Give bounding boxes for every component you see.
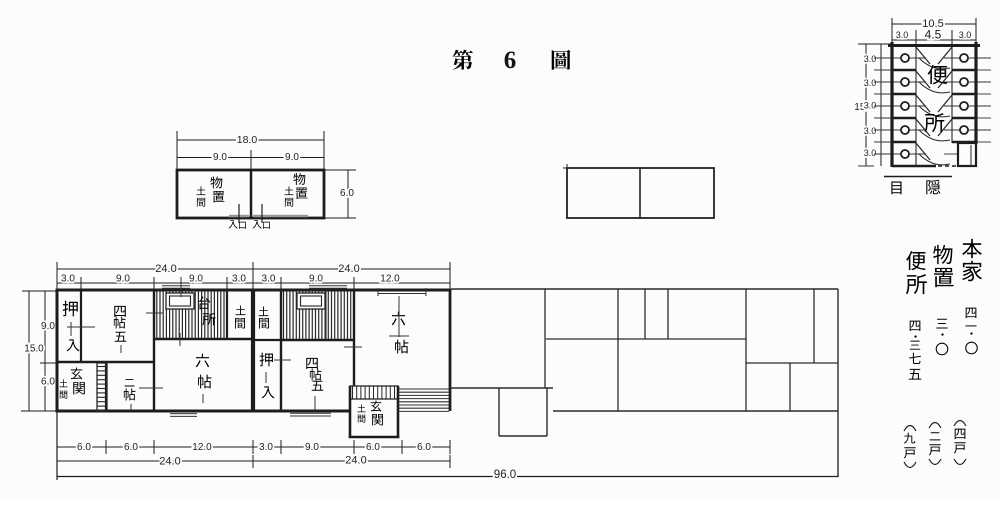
- svg-text:9.0: 9.0: [305, 442, 319, 453]
- svg-text:3.0: 3.0: [61, 274, 75, 285]
- svg-text:15.0: 15.0: [24, 344, 44, 355]
- svg-text:6.0: 6.0: [77, 442, 91, 453]
- svg-text:18.0: 18.0: [237, 134, 258, 146]
- svg-text:3.0: 3.0: [959, 30, 972, 40]
- svg-text:3.0: 3.0: [259, 442, 273, 453]
- svg-text:24.0: 24.0: [345, 455, 366, 467]
- svg-text:9.0: 9.0: [116, 274, 130, 285]
- svg-text:6.0: 6.0: [124, 442, 138, 453]
- svg-text:6.0: 6.0: [417, 442, 431, 453]
- svg-text:9.0: 9.0: [309, 274, 323, 285]
- svg-text:3.0: 3.0: [864, 101, 877, 111]
- svg-text:9.0: 9.0: [189, 274, 203, 285]
- svg-text:12.0: 12.0: [380, 274, 400, 285]
- svg-text:9.0: 9.0: [285, 152, 299, 163]
- svg-text:6.0: 6.0: [41, 377, 55, 388]
- svg-text:96.0: 96.0: [494, 469, 516, 481]
- svg-text:4.5: 4.5: [925, 28, 942, 42]
- svg-text:12.0: 12.0: [192, 442, 212, 453]
- svg-text:3.0: 3.0: [232, 274, 246, 285]
- svg-text:9.0: 9.0: [41, 321, 55, 332]
- svg-text:6: 6: [504, 47, 517, 74]
- svg-text:6.0: 6.0: [366, 442, 380, 453]
- svg-text:9.0: 9.0: [213, 152, 227, 163]
- svg-text:3.0: 3.0: [864, 148, 877, 158]
- svg-text:3.0: 3.0: [864, 54, 877, 64]
- svg-text:3.0: 3.0: [896, 30, 909, 40]
- svg-text:24.0: 24.0: [155, 263, 176, 275]
- svg-text:3.0: 3.0: [864, 78, 877, 88]
- svg-text:3.0: 3.0: [262, 274, 276, 285]
- svg-text:6.0: 6.0: [340, 188, 354, 199]
- svg-text:24.0: 24.0: [159, 456, 180, 468]
- svg-text:3.0: 3.0: [864, 126, 877, 136]
- svg-text:24.0: 24.0: [338, 263, 359, 275]
